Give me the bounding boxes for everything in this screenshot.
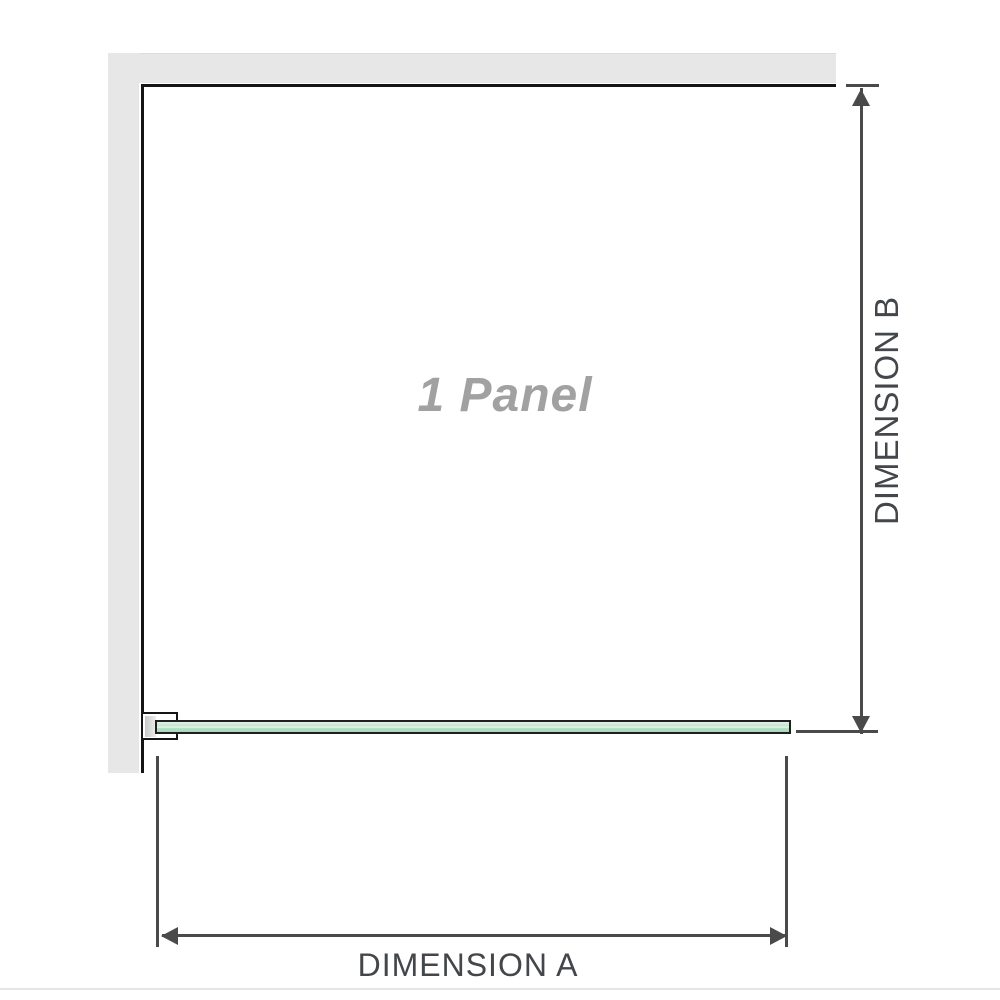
dimension-a-label: DIMENSION A bbox=[318, 947, 618, 983]
panel-outline-left bbox=[141, 84, 144, 773]
panel-outline-top bbox=[143, 84, 836, 87]
panel-count-label: 1 Panel bbox=[355, 368, 655, 424]
bottom-divider bbox=[0, 988, 1000, 990]
shower-panel-diagram: 1 Panel DIMENSION B DIMENSION A bbox=[0, 0, 1000, 1000]
dimension-b-label: DIMENSION B bbox=[867, 305, 907, 525]
glass-panel bbox=[155, 720, 791, 734]
dimension-a-extension-left bbox=[156, 756, 159, 947]
dimension-b-arrowhead-up-icon bbox=[852, 89, 870, 106]
dimension-b-line bbox=[860, 88, 863, 734]
wall-top bbox=[108, 53, 836, 83]
wall-left bbox=[108, 53, 139, 773]
dimension-a-line bbox=[162, 934, 787, 937]
dimension-a-extension-right bbox=[785, 756, 788, 947]
dimension-b-tick-top bbox=[846, 84, 879, 87]
dimension-b-arrowhead-down-icon bbox=[852, 716, 870, 733]
dimension-a-arrowhead-left-icon bbox=[161, 927, 178, 945]
dimension-a-arrowhead-right-icon bbox=[770, 927, 787, 945]
